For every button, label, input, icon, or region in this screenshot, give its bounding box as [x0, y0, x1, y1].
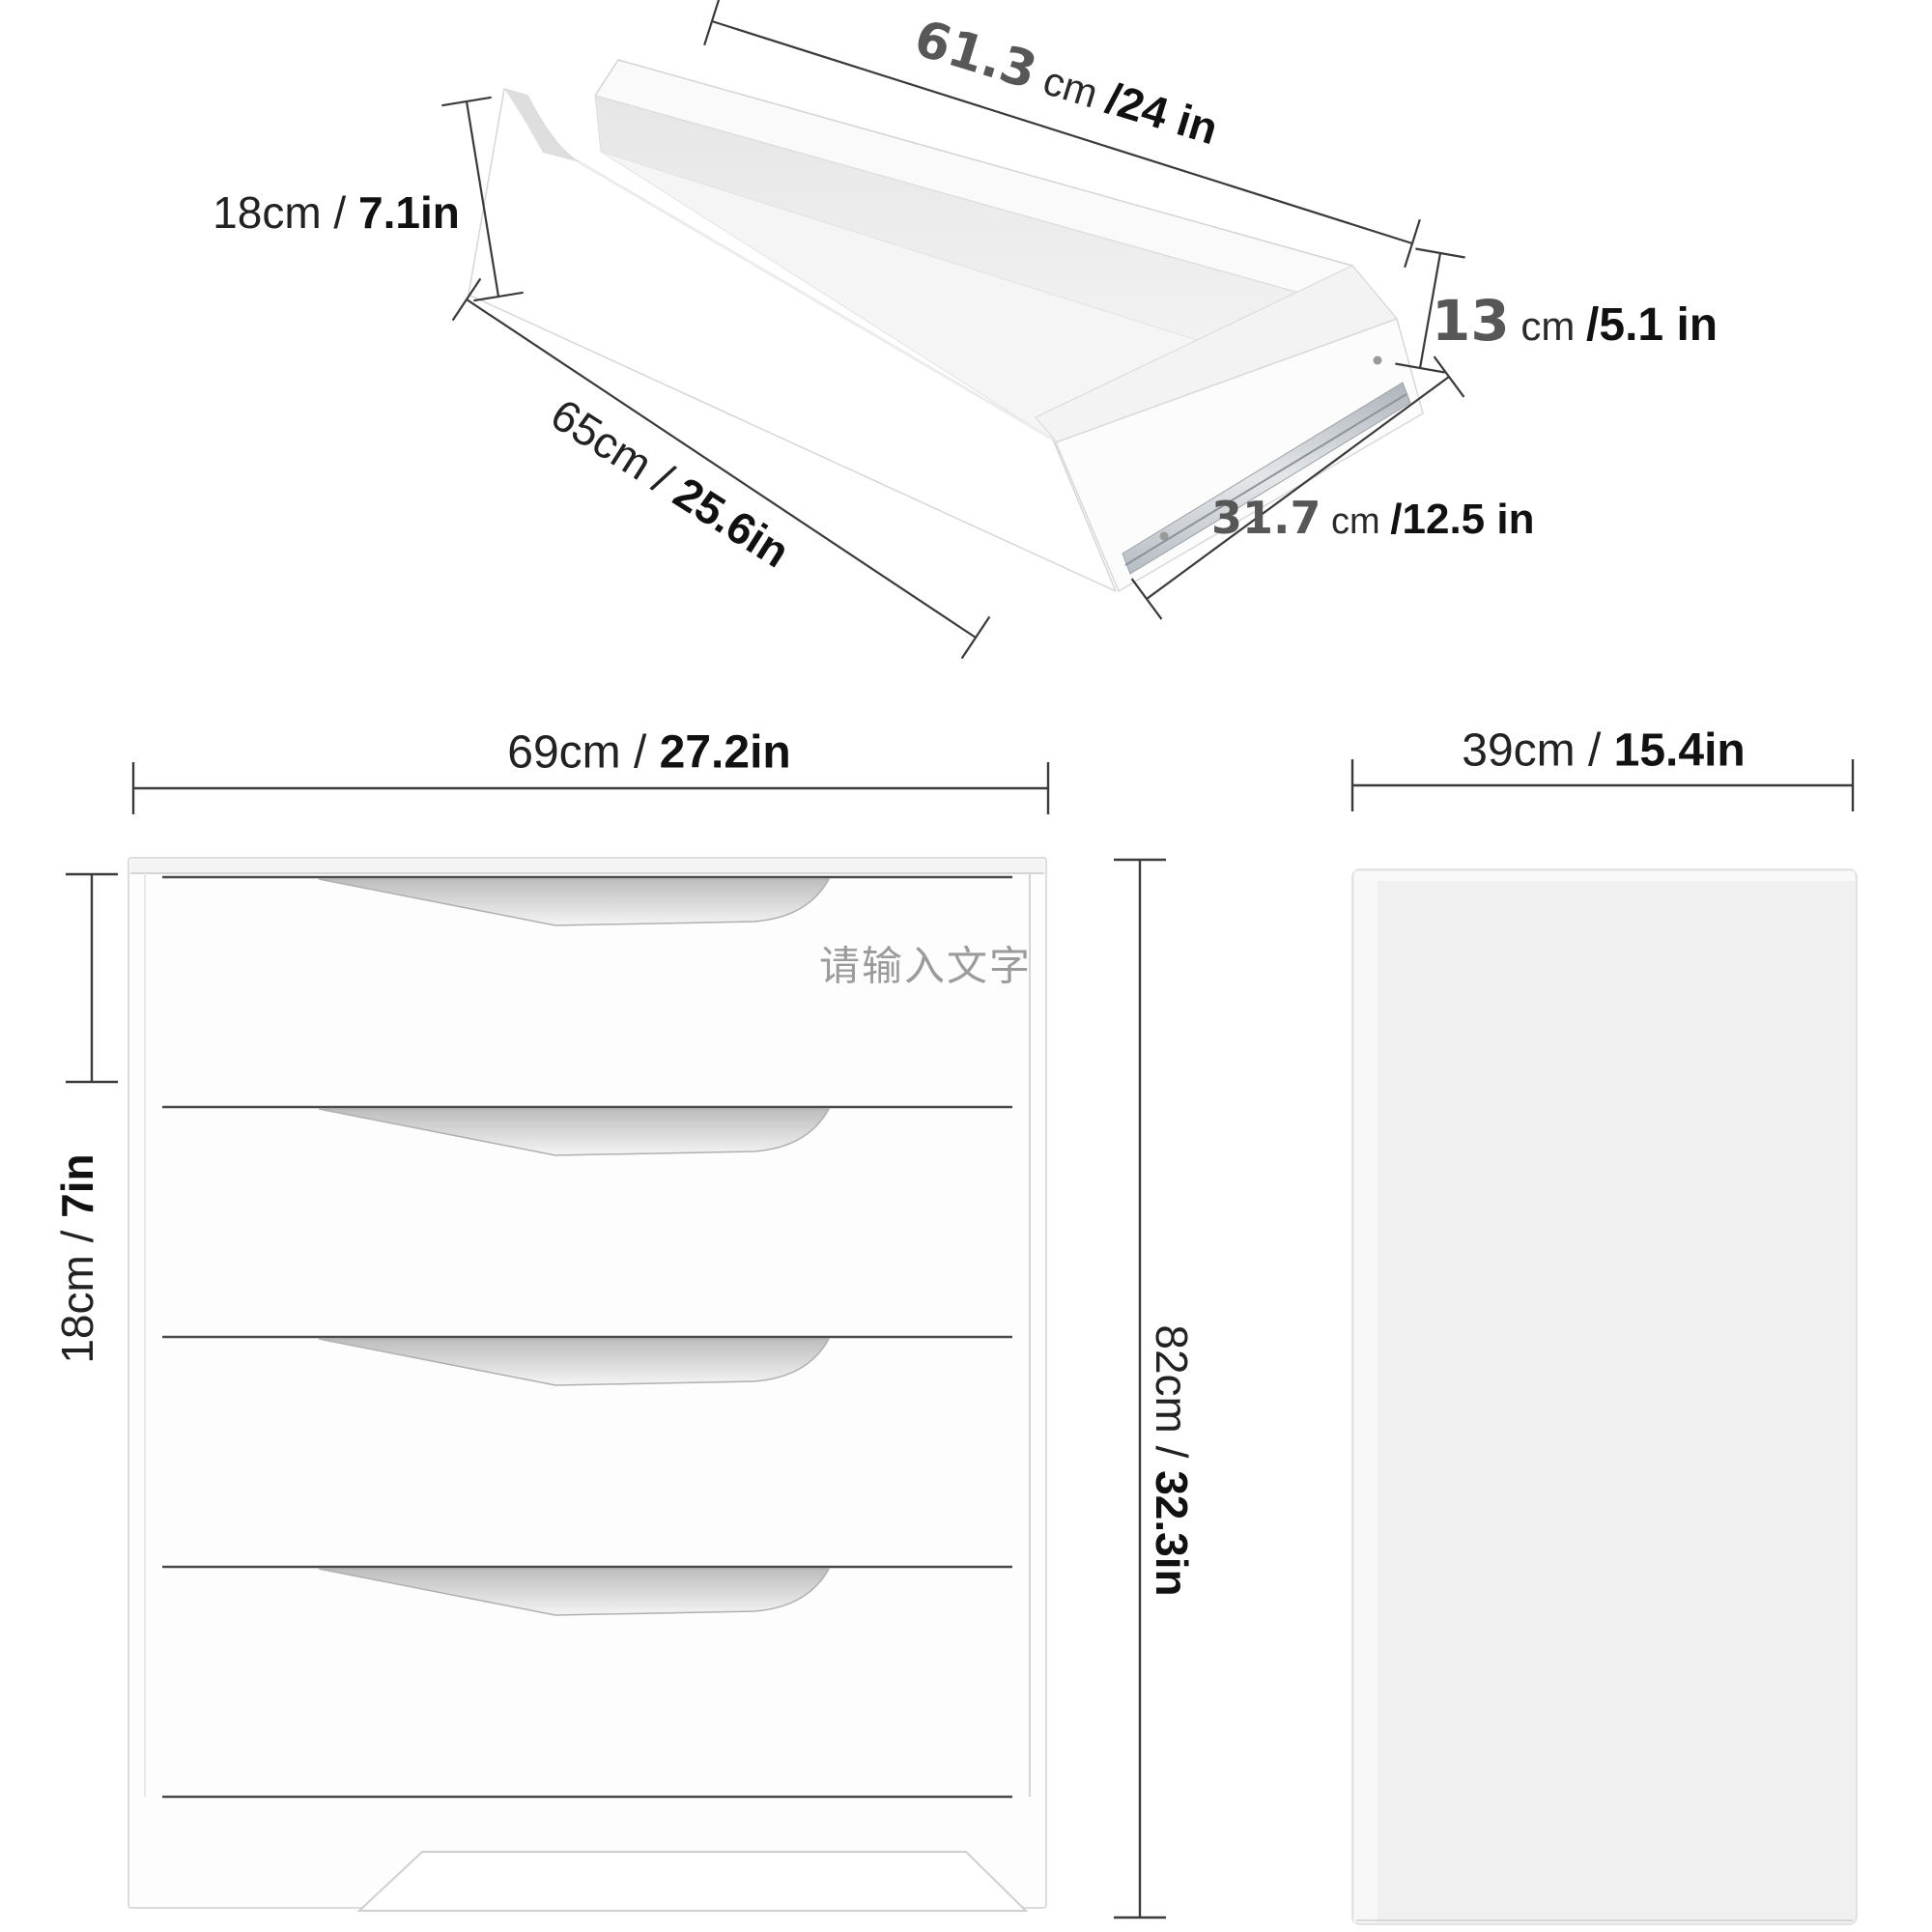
dim-value-cm: 31.7 — [1211, 492, 1321, 544]
watermark-text: 请输入文字 — [819, 934, 1032, 993]
cabinet-top-panel — [130, 860, 1044, 873]
dim-value-cm: 18cm / — [51, 1218, 103, 1364]
dim-value-cm: 82cm / — [1146, 1324, 1198, 1470]
dim-label-drawer-side-height: 13 cm /5.1 in — [1432, 288, 1718, 354]
dim-value-in: 32.3in — [1146, 1470, 1198, 1596]
side-panel-top-highlight — [1354, 871, 1855, 881]
dim-value-cm: 39cm / — [1462, 724, 1613, 778]
dim-value-in: 15.4in — [1614, 724, 1746, 778]
dim-value-in: /5.1 in — [1586, 298, 1718, 352]
dim-value-cm: 18cm / — [213, 186, 358, 239]
cabinet-side-view — [1352, 869, 1857, 1924]
dim-unit: cm — [1510, 303, 1586, 350]
drawer-rail-screw — [1160, 532, 1169, 541]
dim-line-cabinet-drawer-height — [66, 874, 118, 1082]
cabinet-front-view — [128, 858, 1046, 1911]
dim-label-cabinet-drawer-height: 18cm / 7in — [51, 1153, 103, 1363]
dim-label-drawer-depth: 31.7 cm /12.5 in — [1211, 492, 1534, 544]
dim-label-drawer-front-height: 18cm / 7.1in — [213, 186, 460, 239]
dim-value-cm: 69cm / — [507, 726, 659, 780]
dim-label-side-depth: 39cm / 15.4in — [1462, 724, 1745, 778]
dim-value-in: 27.2in — [660, 726, 791, 780]
cabinet-base-cutout — [359, 1852, 1026, 1911]
side-panel-left-highlight — [1354, 871, 1378, 1922]
dim-value-in: 7.1in — [358, 186, 460, 239]
dim-value-in: /12.5 in — [1390, 496, 1534, 544]
dim-label-cabinet-width: 69cm / 27.2in — [507, 726, 790, 780]
dim-label-cabinet-height: 82cm / 32.3in — [1146, 1324, 1198, 1596]
side-panel — [1352, 869, 1857, 1924]
drawer-rail-screw — [1374, 356, 1382, 365]
dim-value-in: 7in — [51, 1153, 103, 1217]
dim-unit: cm — [1321, 501, 1391, 543]
dim-value-cm: 13 — [1432, 288, 1510, 354]
product-dimension-diagram: 61.3 cm /24 in 18cm / 7.1in 13 cm /5.1 i… — [0, 0, 1932, 1932]
